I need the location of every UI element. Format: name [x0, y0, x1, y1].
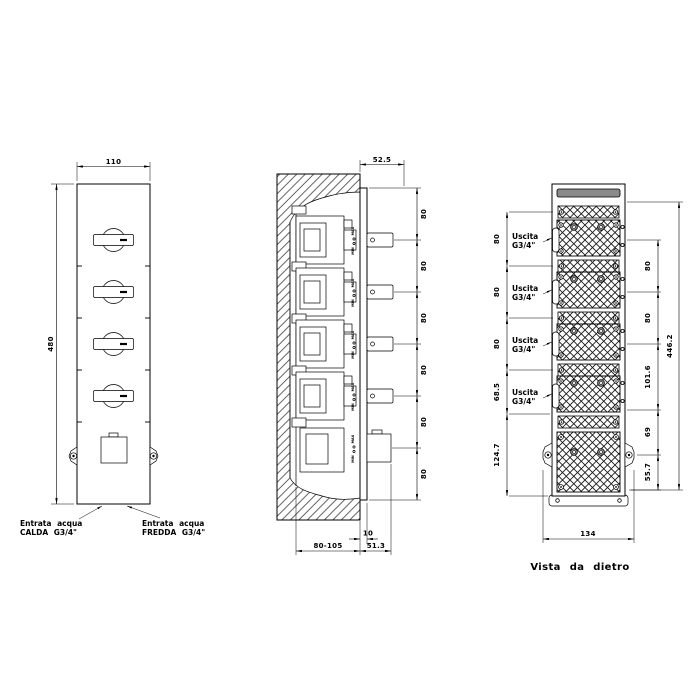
- dim-51-3: 51.3: [367, 542, 385, 550]
- rear-ear-right: [625, 443, 634, 467]
- svg-text:80: 80: [493, 287, 501, 297]
- outlet-label-4: Uscita G3/4": [512, 388, 552, 406]
- section-handle-4: [367, 389, 393, 403]
- svg-text:G3/4": G3/4": [512, 293, 535, 302]
- svg-text:MIN: MIN: [351, 403, 355, 411]
- svg-text:MAX: MAX: [351, 382, 355, 391]
- rear-top-cap: [557, 189, 620, 197]
- front-ear-left: [69, 447, 77, 465]
- svg-text:69: 69: [644, 427, 652, 437]
- dim-110: 110: [106, 158, 122, 166]
- dim-134: 134: [580, 530, 596, 538]
- diverter-box: [101, 433, 127, 463]
- outlet-port-3: [553, 332, 560, 356]
- outlet-port-1: [553, 228, 560, 252]
- svg-text:80: 80: [420, 313, 428, 323]
- rear-bottom-bar: [549, 495, 628, 506]
- dim-section-offset: 52.5: [360, 156, 404, 186]
- svg-text:80: 80: [420, 209, 428, 219]
- cold-inlet-line1: Entrata acqua: [142, 519, 204, 528]
- svg-text:80: 80: [493, 339, 501, 349]
- hot-inlet-line2: CALDA G3/4": [20, 528, 77, 537]
- cold-inlet-line2: FREDDA G3/4": [142, 528, 205, 537]
- drawing-svg: 110 480 Entrata acqua CALDA G3/4" Entrat…: [0, 0, 700, 700]
- svg-text:MIN: MIN: [351, 455, 355, 463]
- svg-text:Uscita: Uscita: [512, 284, 538, 293]
- lattice-strip-4: [558, 416, 619, 428]
- svg-text:MIN: MIN: [351, 299, 355, 307]
- section-handle-2: [367, 285, 393, 299]
- svg-text:MAX: MAX: [351, 226, 355, 235]
- lattice-strip-2: [558, 312, 619, 324]
- rear-module-2: [553, 272, 625, 324]
- svg-text:80: 80: [420, 469, 428, 479]
- section-diverter-box: [367, 430, 391, 462]
- hot-inlet-line1: Entrata acqua: [20, 519, 82, 528]
- svg-text:G3/4": G3/4": [512, 345, 535, 354]
- outlet-port-4: [553, 384, 560, 408]
- rear-ear-left: [543, 443, 552, 467]
- front-view: 110 480 Entrata acqua CALDA G3/4" Entrat…: [20, 158, 205, 537]
- svg-text:Uscita: Uscita: [512, 336, 538, 345]
- rear-bottom-panel: [557, 432, 620, 492]
- rear-module-4: [553, 376, 625, 428]
- flange-plate: [360, 188, 367, 500]
- outlet-port-2: [553, 280, 560, 304]
- svg-text:G3/4": G3/4": [512, 241, 535, 250]
- front-ear-right: [150, 447, 158, 465]
- hot-inlet-leader: [79, 506, 102, 519]
- dim-front-width: 110: [77, 158, 150, 181]
- lattice-strip-3: [558, 364, 619, 376]
- dim-10: 10: [363, 530, 373, 538]
- section-handle-3: [367, 337, 393, 351]
- svg-text:55.7: 55.7: [644, 463, 652, 481]
- svg-text:G3/4": G3/4": [512, 397, 535, 406]
- svg-text:80: 80: [493, 234, 501, 244]
- dim-80-105: 80-105: [313, 542, 342, 550]
- dim-rear-overall: 446.2: [627, 202, 683, 490]
- bottom-block-section: [300, 428, 344, 472]
- svg-text:MAX: MAX: [351, 330, 355, 339]
- technical-drawing: 110 480 Entrata acqua CALDA G3/4" Entrat…: [0, 0, 700, 700]
- dim-52-5: 52.5: [373, 156, 391, 164]
- section-handle-1: [367, 233, 393, 247]
- svg-text:MAX: MAX: [351, 278, 355, 287]
- dim-480: 480: [47, 336, 55, 352]
- rear-view-caption: Vista da dietro: [530, 562, 629, 573]
- outlet-label-2: Uscita G3/4": [512, 284, 552, 302]
- svg-text:80: 80: [420, 365, 428, 375]
- cold-inlet-leader: [127, 506, 160, 518]
- rear-view: Uscita G3/4" Uscita G3/4" Uscita G3/4" U…: [493, 184, 683, 573]
- svg-text:MIN: MIN: [351, 351, 355, 359]
- rear-module-1: [553, 220, 625, 272]
- svg-text:MIN: MIN: [351, 247, 355, 255]
- hot-inlet-label: Entrata acqua CALDA G3/4": [20, 519, 82, 537]
- cold-inlet-label: Entrata acqua FREDDA G3/4": [142, 519, 205, 537]
- section-handles: [367, 233, 393, 462]
- dim-446-2: 446.2: [666, 334, 674, 358]
- svg-text:101.6: 101.6: [644, 365, 652, 389]
- svg-text:124.7: 124.7: [493, 443, 501, 467]
- section-view: MAX MIN MAX MIN MAX MIN MAX MIN MAX: [277, 156, 428, 555]
- lattice-strip-1: [558, 260, 619, 272]
- svg-text:Uscita: Uscita: [512, 388, 538, 397]
- outlet-label-3: Uscita G3/4": [512, 336, 552, 354]
- lattice-strip-top: [558, 206, 619, 218]
- svg-text:80: 80: [420, 417, 428, 427]
- rear-module-3: [553, 324, 625, 376]
- svg-text:80: 80: [644, 313, 652, 323]
- svg-text:80: 80: [420, 261, 428, 271]
- outlet-label-1: Uscita G3/4": [512, 232, 552, 250]
- svg-text:68.5: 68.5: [493, 383, 501, 401]
- svg-text:MAX: MAX: [351, 434, 355, 443]
- svg-text:80: 80: [644, 261, 652, 271]
- svg-text:Uscita: Uscita: [512, 232, 538, 241]
